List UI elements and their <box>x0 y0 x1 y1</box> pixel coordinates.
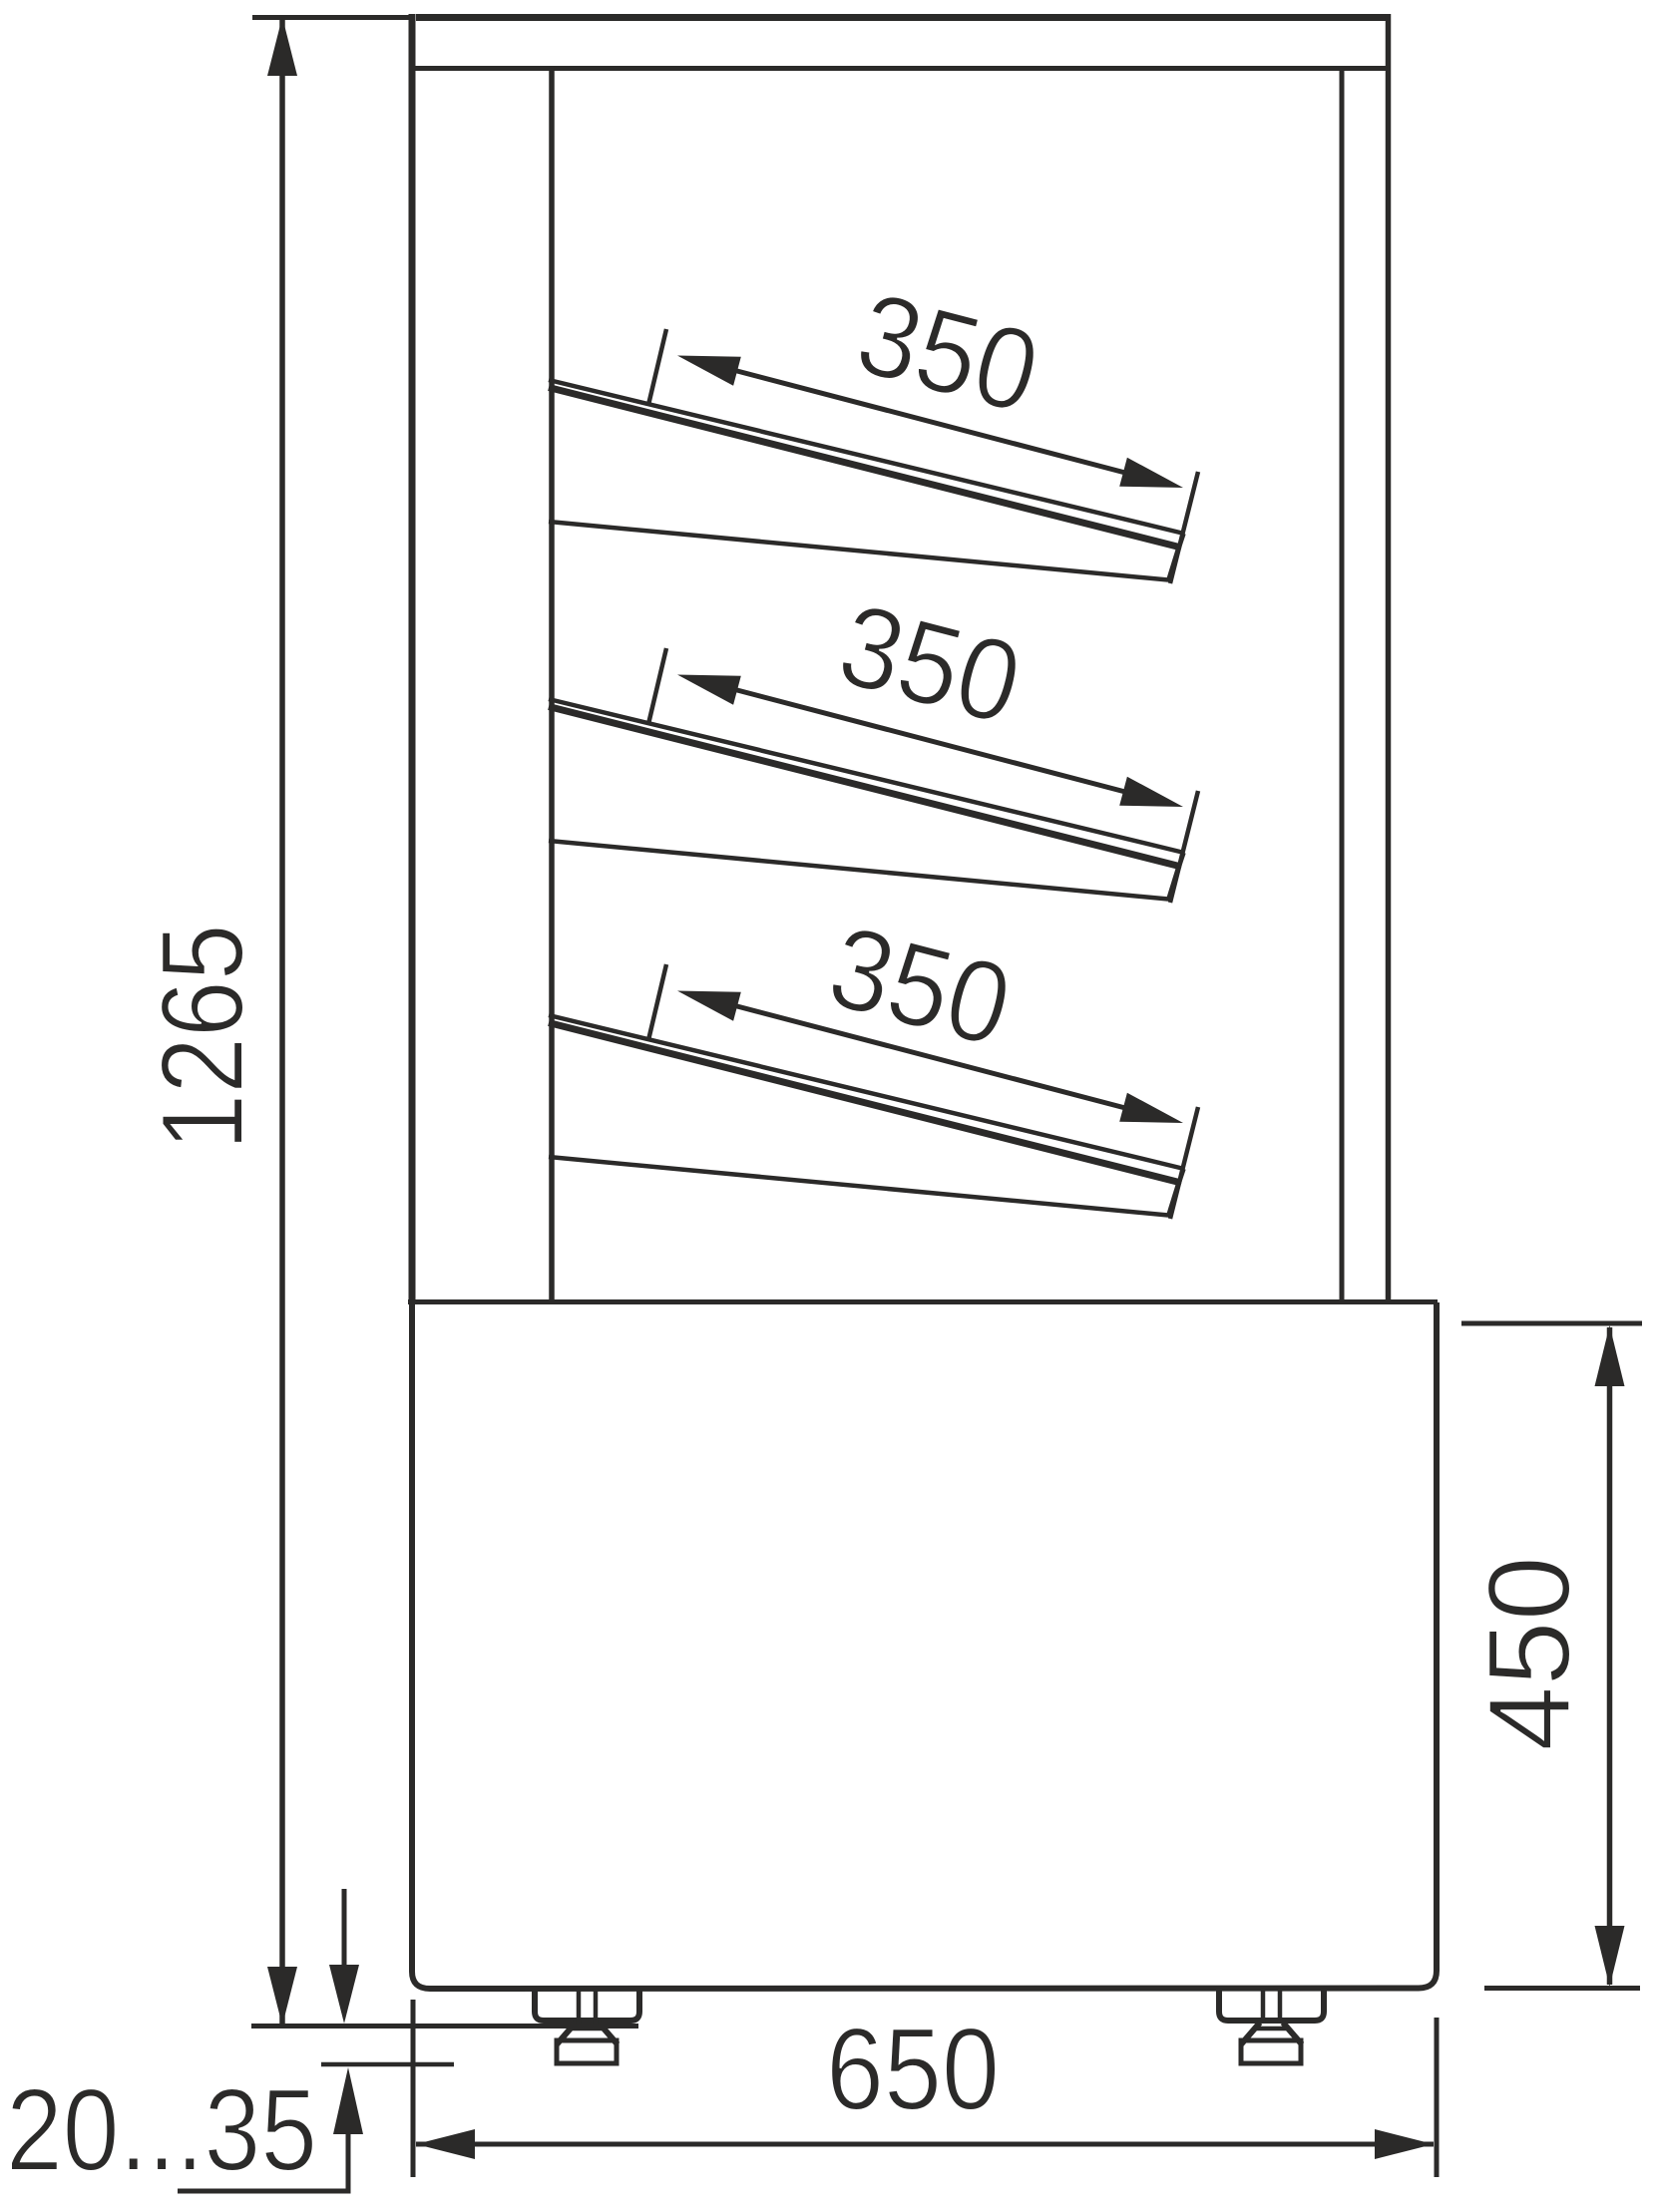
svg-text:20...35: 20...35 <box>6 2064 317 2195</box>
svg-text:450: 450 <box>1463 1556 1594 1751</box>
svg-text:650: 650 <box>826 2004 1000 2134</box>
svg-text:1265: 1265 <box>137 924 267 1151</box>
